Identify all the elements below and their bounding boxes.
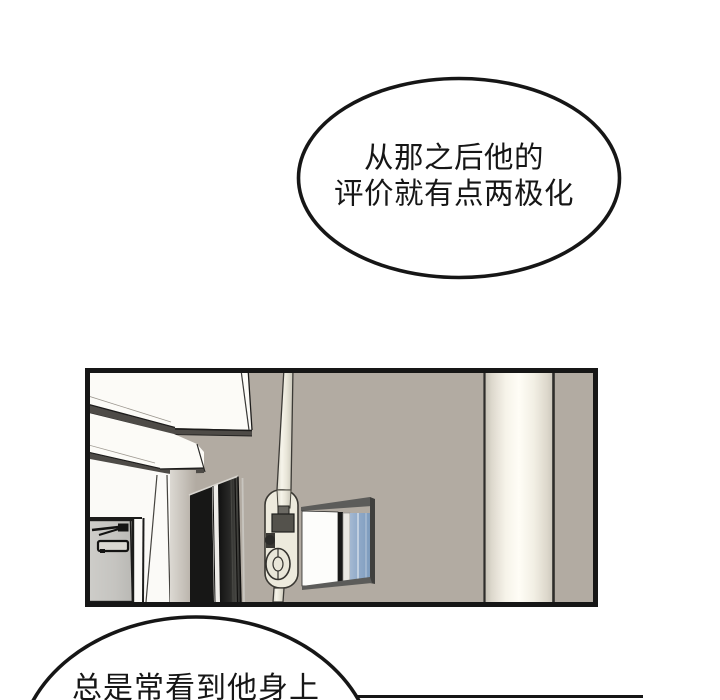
valve-handwheel — [266, 549, 290, 580]
dark-doorway — [189, 476, 244, 602]
window-glass — [350, 513, 370, 583]
speech-bubble-top-line1: 从那之后他的 — [364, 142, 544, 175]
comic-page: 从那之后他的 评价就有点两极化 — [0, 0, 720, 700]
speech-bubble-top: 从那之后他的 评价就有点两极化 — [292, 74, 628, 284]
speech-bubble-top-line2: 评价就有点两极化 — [334, 178, 574, 211]
speech-bubble-bottom-text: 总是常看到他身上 — [40, 673, 352, 700]
pillar — [485, 368, 554, 607]
push-bar — [98, 541, 128, 553]
panel-illustration — [85, 368, 598, 607]
